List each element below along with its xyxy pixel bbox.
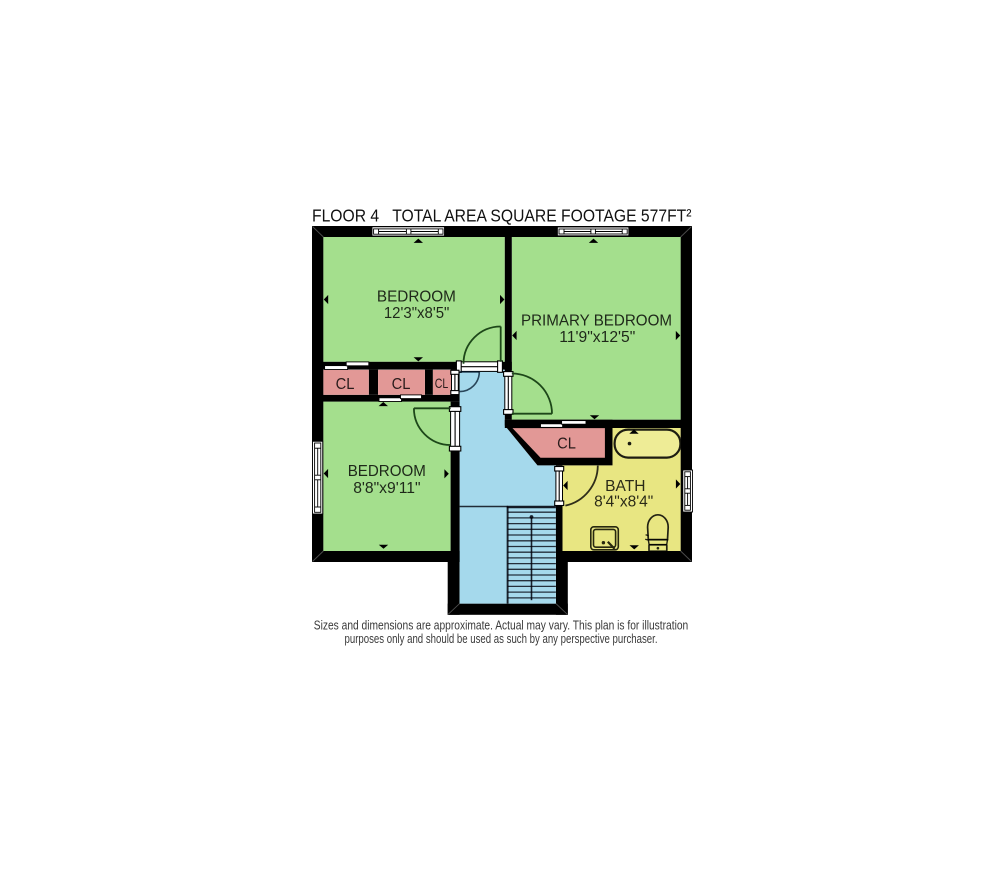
svg-text:CL: CL <box>392 376 411 393</box>
svg-text:CL: CL <box>557 436 576 453</box>
svg-text:BEDROOM: BEDROOM <box>377 289 456 306</box>
svg-text:12'3"x8'5": 12'3"x8'5" <box>384 305 450 322</box>
svg-text:PRIMARY BEDROOM: PRIMARY BEDROOM <box>521 313 672 330</box>
svg-text:BATH: BATH <box>605 478 645 495</box>
svg-text:purposes only and should be us: purposes only and should be used as such… <box>345 632 658 646</box>
svg-text:FLOOR 4 TOTAL AREA SQUARE FO: FLOOR 4 TOTAL AREA SQUARE FOOTAGE 577FT² <box>312 206 692 226</box>
svg-text:CL: CL <box>435 375 449 391</box>
svg-text:8'4"x8'4": 8'4"x8'4" <box>594 494 653 511</box>
svg-text:CL: CL <box>336 376 355 393</box>
svg-text:Sizes and dimensions are appro: Sizes and dimensions are approximate. Ac… <box>314 618 689 632</box>
svg-text:11'9"x12'5": 11'9"x12'5" <box>559 329 635 346</box>
svg-text:8'8"x9'11": 8'8"x9'11" <box>353 480 420 497</box>
svg-text:BEDROOM: BEDROOM <box>348 463 426 480</box>
